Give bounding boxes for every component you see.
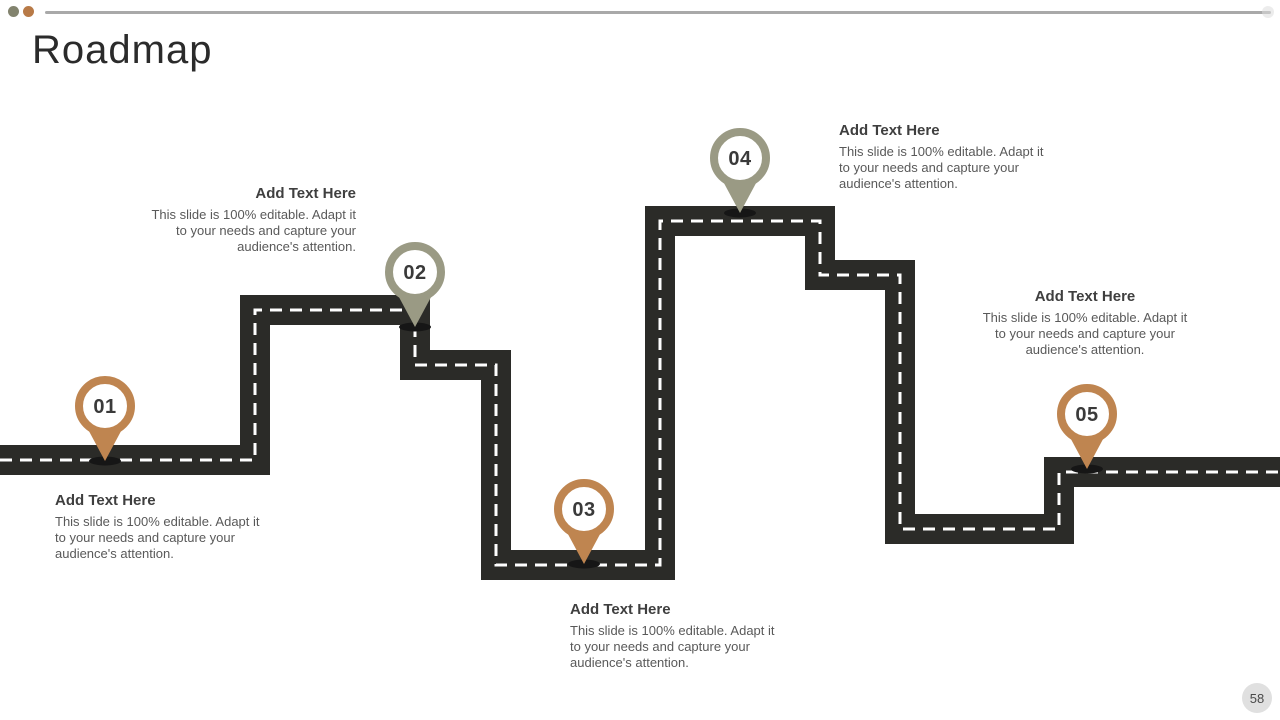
pin-number: 04 bbox=[728, 148, 752, 170]
note-heading: Add Text Here bbox=[570, 601, 792, 618]
note-body-line: audience's attention. bbox=[570, 655, 792, 671]
milestone-04-note: Add Text Here This slide is 100% editabl… bbox=[839, 122, 1061, 191]
milestone-02-note: Add Text Here This slide is 100% editabl… bbox=[134, 185, 356, 254]
pin-number: 01 bbox=[93, 396, 116, 418]
page-number-badge: 58 bbox=[1242, 683, 1272, 713]
note-body-line: This slide is 100% editable. Adapt it bbox=[55, 514, 277, 530]
note-heading: Add Text Here bbox=[839, 122, 1061, 139]
note-body-line: audience's attention. bbox=[55, 546, 277, 562]
milestone-03-note: Add Text Here This slide is 100% editabl… bbox=[570, 601, 792, 670]
note-heading: Add Text Here bbox=[55, 492, 277, 509]
page-number: 58 bbox=[1250, 691, 1264, 706]
pin-number: 03 bbox=[572, 499, 595, 521]
note-heading: Add Text Here bbox=[134, 185, 356, 202]
roadmap-slide: Roadmap 01 02 03 04 bbox=[0, 0, 1280, 720]
note-body-line: to your needs and capture your bbox=[55, 530, 277, 546]
note-body-line: audience's attention. bbox=[974, 342, 1196, 358]
note-heading: Add Text Here bbox=[974, 288, 1196, 305]
note-body-line: to your needs and capture your bbox=[974, 326, 1196, 342]
note-body-line: This slide is 100% editable. Adapt it bbox=[839, 144, 1061, 160]
pin-number: 05 bbox=[1075, 404, 1098, 426]
note-body-line: This slide is 100% editable. Adapt it bbox=[570, 623, 792, 639]
pin-number: 02 bbox=[403, 262, 426, 284]
milestone-05-note: Add Text Here This slide is 100% editabl… bbox=[974, 288, 1196, 357]
note-body-line: This slide is 100% editable. Adapt it bbox=[134, 207, 356, 223]
note-body-line: to your needs and capture your bbox=[134, 223, 356, 239]
note-body-line: to your needs and capture your bbox=[839, 160, 1061, 176]
note-body-line: to your needs and capture your bbox=[570, 639, 792, 655]
note-body-line: This slide is 100% editable. Adapt it bbox=[974, 310, 1196, 326]
milestone-01-note: Add Text Here This slide is 100% editabl… bbox=[55, 492, 277, 561]
pin-04: 04 bbox=[714, 132, 766, 218]
note-body-line: audience's attention. bbox=[134, 239, 356, 255]
note-body-line: audience's attention. bbox=[839, 176, 1061, 192]
